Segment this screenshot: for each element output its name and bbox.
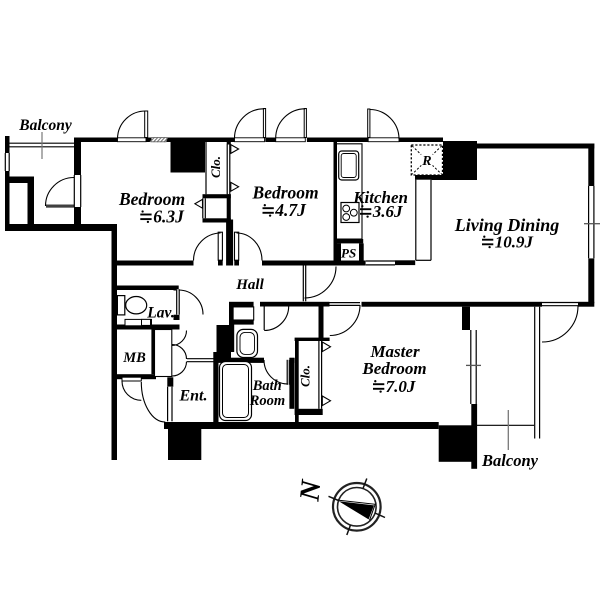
- svg-text:3.6J: 3.6J: [372, 202, 403, 221]
- svg-text:Bath: Bath: [252, 378, 282, 394]
- svg-text:PS: PS: [341, 246, 356, 261]
- svg-text:Bedroom: Bedroom: [361, 359, 426, 378]
- svg-text:MB: MB: [122, 350, 146, 366]
- svg-text:10.9J: 10.9J: [495, 233, 534, 252]
- svg-text:Hall: Hall: [235, 277, 264, 293]
- svg-text:Ent.: Ent.: [178, 388, 207, 405]
- svg-text:Balcony: Balcony: [18, 117, 72, 134]
- svg-text:6.3J: 6.3J: [153, 206, 185, 226]
- svg-text:7.0J: 7.0J: [386, 377, 416, 396]
- svg-text:Lav.: Lav.: [146, 304, 174, 321]
- svg-text:Room: Room: [249, 393, 285, 409]
- svg-text:Balcony: Balcony: [481, 451, 539, 470]
- svg-text:Clo.: Clo.: [298, 365, 313, 387]
- svg-text:R: R: [421, 154, 431, 169]
- svg-text:Clo.: Clo.: [208, 156, 223, 178]
- svg-text:4.7J: 4.7J: [274, 200, 307, 220]
